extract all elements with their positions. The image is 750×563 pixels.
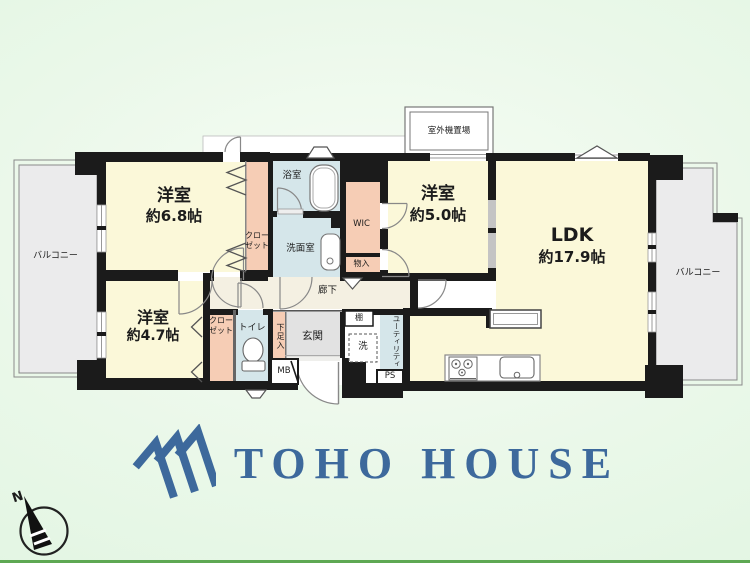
entrance-label: 玄関	[285, 330, 340, 343]
washer-label: 洗	[349, 341, 377, 352]
closet-lower-label: クロー ゼット	[206, 316, 236, 335]
toho-house-logo-text: TOHO HOUSE	[234, 438, 620, 489]
compass	[21, 496, 68, 555]
toho-house-logo-icon	[130, 424, 216, 502]
pipe-space-label: PS	[377, 371, 403, 381]
ldk-size: 約17.9帖	[496, 248, 648, 266]
bedroom2-size: 約5.0帖	[388, 206, 488, 224]
meter-box-label: MB	[271, 366, 297, 376]
closet-upper-line1: クロー	[243, 231, 271, 241]
bedroom3-size: 約4.7帖	[103, 328, 203, 345]
washroom-label: 洗面室	[273, 243, 328, 254]
bedroom1-size: 約6.8帖	[103, 207, 245, 225]
shoe-cabinet-label: 下足入	[271, 316, 285, 356]
bathroom-label: 浴室	[273, 170, 311, 181]
ldk-name: LDK	[496, 224, 648, 247]
closet-upper-line2: ゼット	[243, 241, 271, 251]
bedroom2-name: 洋室	[388, 184, 488, 204]
company-logo: TOHO HOUSE	[0, 424, 750, 502]
balcony-left-label: バルコニー	[14, 251, 97, 262]
balcony-right-label: バルコニー	[658, 268, 738, 279]
entrance-door	[297, 362, 339, 404]
storage-label: 物入	[343, 259, 380, 269]
floorplan-canvas: 洋室 約6.8帖 洋室 約5.0帖 LDK 約17.9帖 洋室 約4.7帖 浴室…	[0, 0, 750, 563]
bedroom1-name: 洋室	[103, 186, 245, 206]
shelf-label: 棚	[345, 313, 373, 323]
hallway-label: 廊下	[285, 285, 370, 296]
closet-lower-line2: ゼット	[206, 326, 236, 336]
toilet-label: トイレ	[236, 323, 268, 334]
wic-label: WIC	[343, 219, 380, 229]
bedroom3-name: 洋室	[103, 308, 203, 327]
utility-label: ユーティリティ	[383, 313, 401, 369]
closet-lower-line1: クロー	[206, 316, 236, 326]
outdoor-unit-label: 室外機置場	[405, 126, 493, 136]
closet-upper-label: クロー ゼット	[243, 231, 271, 250]
